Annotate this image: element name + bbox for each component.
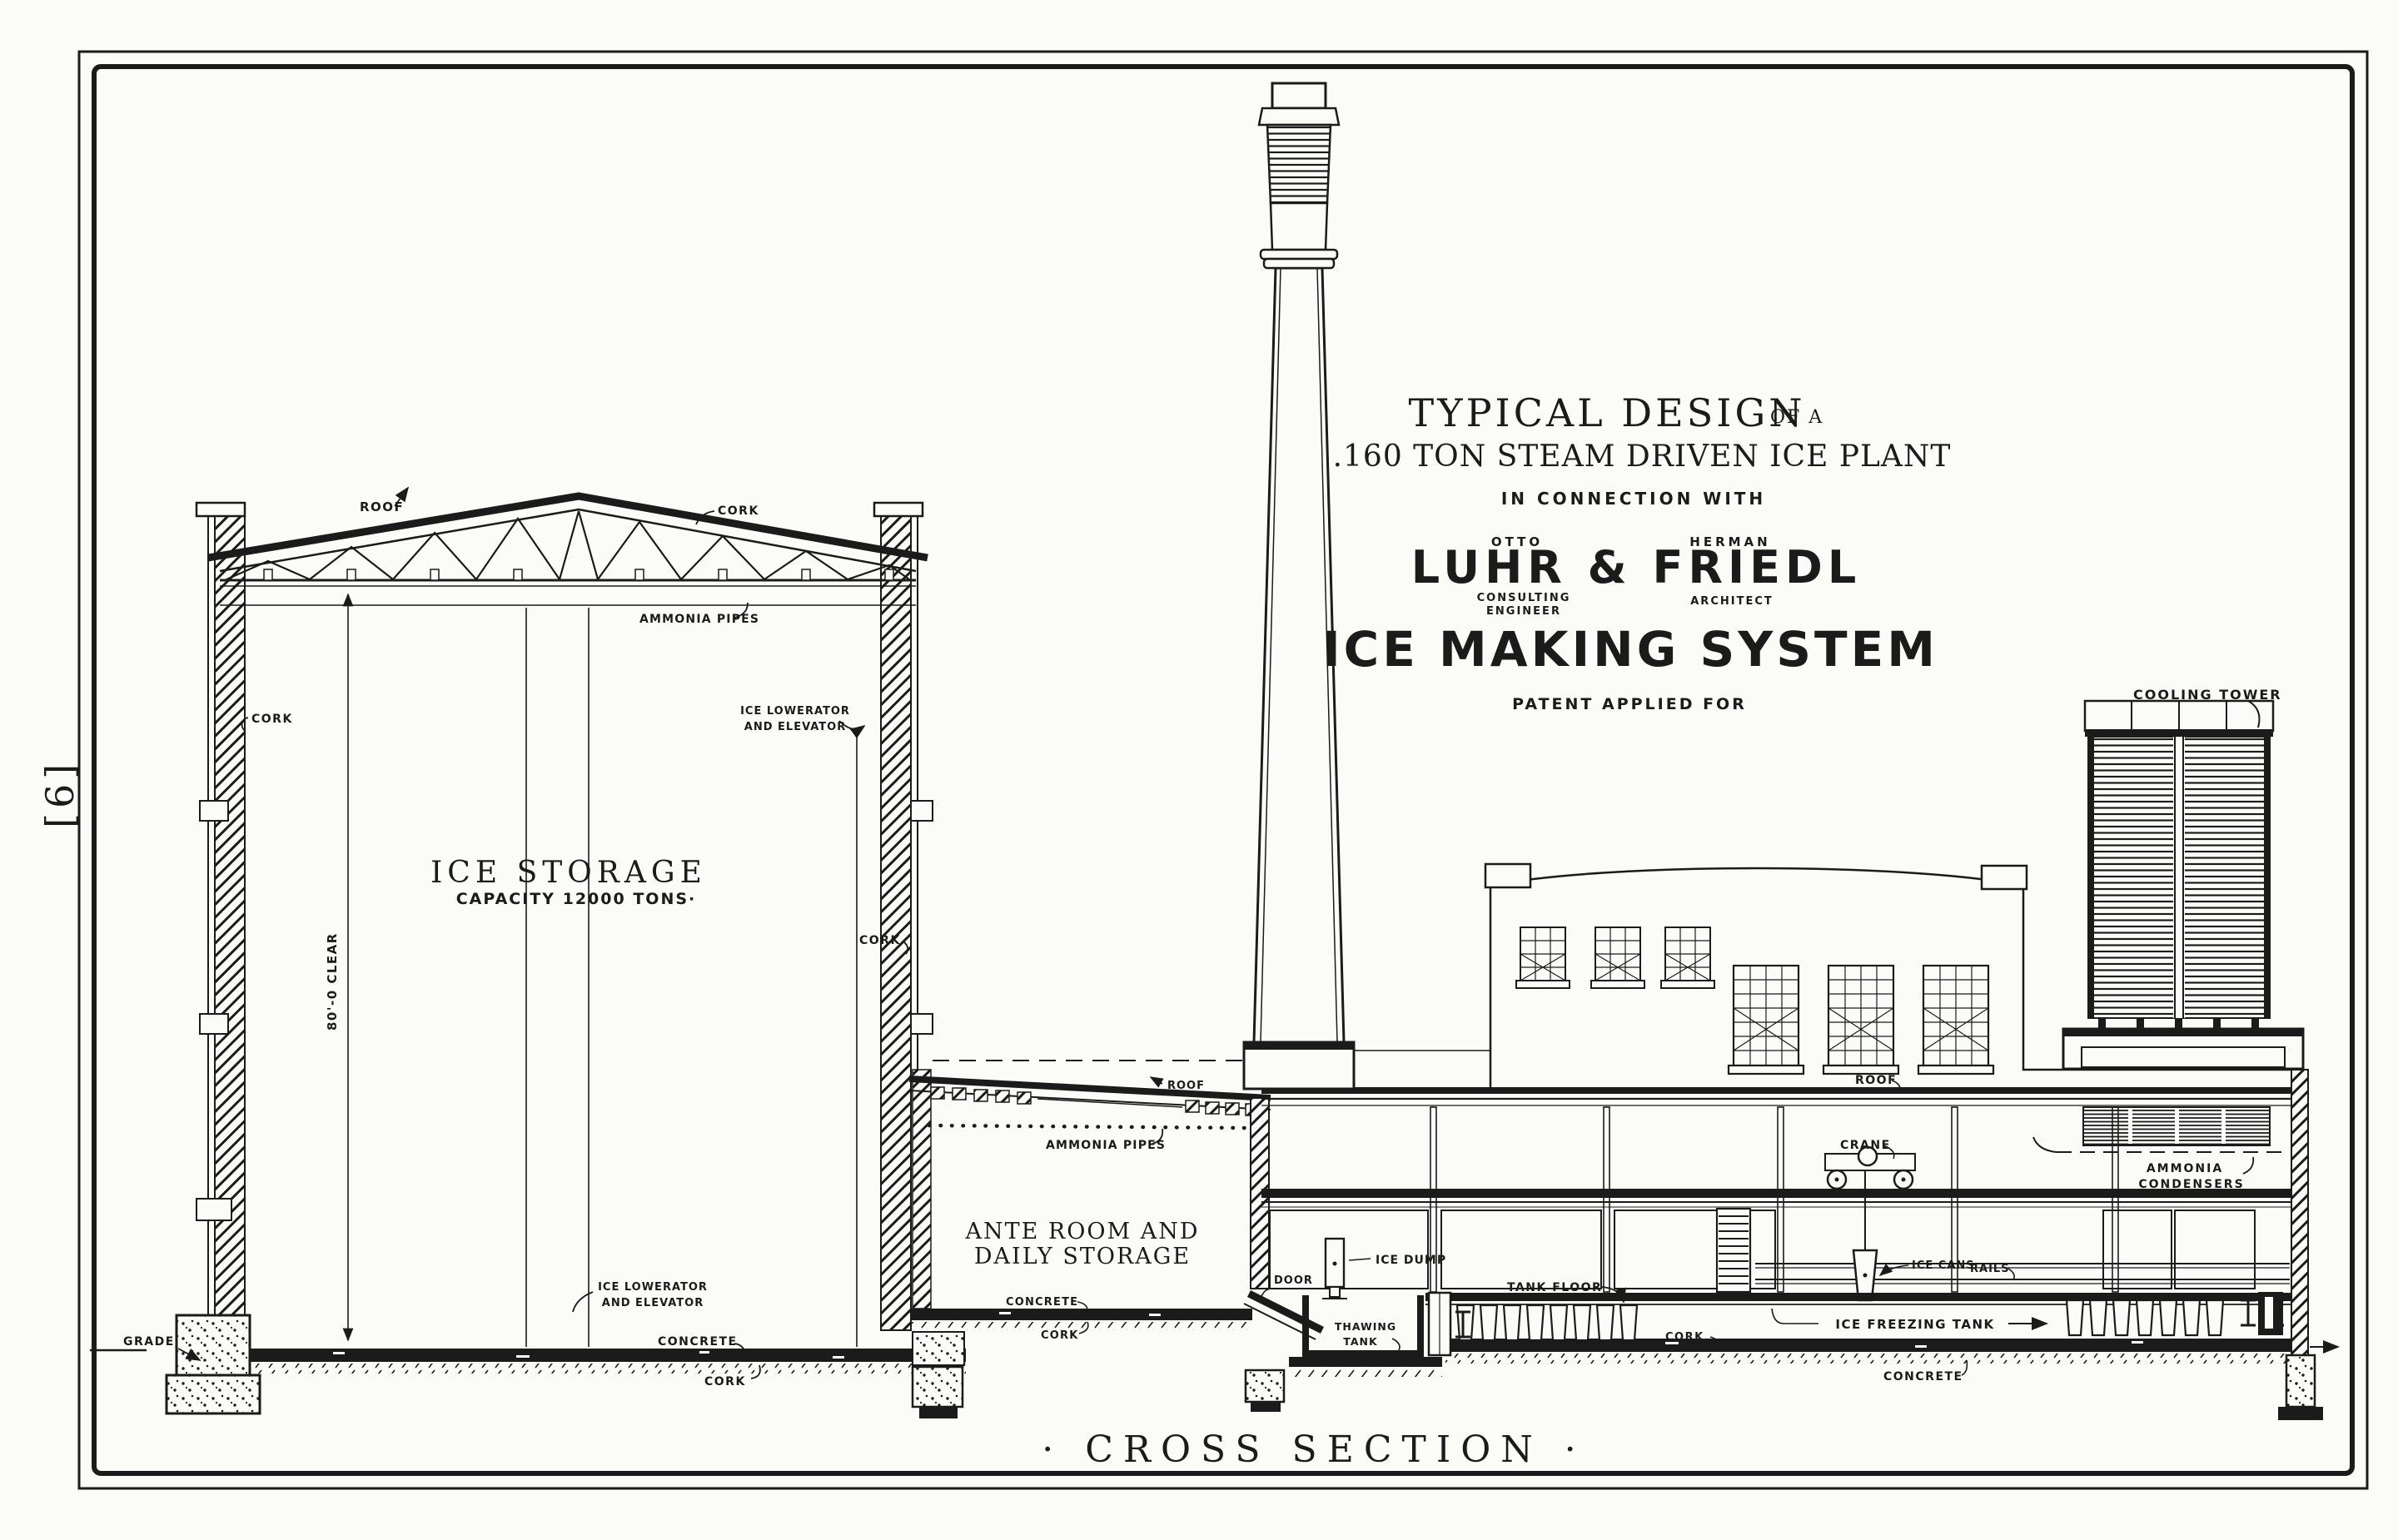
cork-right-wall-label: CORK — [859, 934, 901, 947]
rails-label: RAILS — [1970, 1263, 2010, 1275]
lowerator-bottom-label-2: AND ELEVATOR — [602, 1297, 704, 1309]
lowerator-bottom-label-1: ICE LOWERATOR — [598, 1281, 708, 1294]
role-consulting: CONSULTING — [1477, 592, 1571, 604]
concrete-label: CONCRETE — [658, 1335, 738, 1349]
ante-roof-label: ROOF — [1167, 1080, 1205, 1092]
cork-left-wall-label: CORK — [251, 713, 293, 726]
system-name: ICE MAKING SYSTEM — [1322, 621, 1938, 678]
role-architect: ARCHITECT — [1690, 595, 1774, 608]
thawing-tank-label-1: THAWING — [1335, 1320, 1396, 1333]
ante-cork-label: CORK — [1041, 1329, 1078, 1342]
tank-floor-label: TANK FLOOR — [1507, 1281, 1602, 1294]
title-line1-small: OF A — [1770, 407, 1823, 428]
title-connection: IN CONNECTION WITH — [1501, 489, 1766, 509]
drawing-title: · CROSS SECTION · — [1042, 1428, 1586, 1471]
cork-roof-label: CORK — [718, 504, 759, 518]
cooling-tower-label: COOLING TOWER — [2133, 687, 2282, 703]
door-label: DOOR — [1274, 1274, 1313, 1287]
ante-room-name-1: ANTE ROOM AND — [964, 1219, 1199, 1244]
ice-dump-label: ICE DUMP — [1376, 1254, 1446, 1267]
lowerator-top-label-2: AND ELEVATOR — [744, 721, 846, 733]
mh-concrete-label: CONCRETE — [1883, 1370, 1963, 1384]
blueprint-page: [6] — [0, 0, 2398, 1540]
ante-concrete-label: CONCRETE — [1006, 1296, 1078, 1309]
grade-label: GRADE — [123, 1335, 175, 1349]
room-name: ICE STORAGE — [430, 856, 707, 890]
wall-footing — [177, 1315, 250, 1375]
lowerator-top-label-1: ICE LOWERATOR — [740, 705, 850, 718]
condensers-label-1: AMMONIA — [2147, 1162, 2223, 1175]
role-engineer: ENGINEER — [1486, 605, 1561, 618]
clear-height-label: 80'-0 CLEAR — [325, 932, 340, 1031]
ice-cans-label: ICE CANS — [1912, 1259, 1975, 1272]
page-number: [6] — [37, 759, 82, 828]
mh-roof-label: ROOF — [1855, 1074, 1897, 1087]
crane-label: CRANE — [1840, 1139, 1891, 1152]
room-capacity: CAPACITY 12000 TONS· — [456, 890, 697, 908]
title-block: TYPICAL DESIGN OF A .160 TON STEAM DRIVE… — [1322, 390, 1951, 713]
cooling-tower — [2063, 701, 2303, 1069]
tank-cork-label: CORK — [1665, 1331, 1704, 1344]
title-line2: .160 TON STEAM DRIVEN ICE PLANT — [1333, 440, 1952, 474]
firm-name: LUHR & FRIEDL — [1411, 541, 1861, 594]
freezing-tank-label: ICE FREEZING TANK — [1835, 1317, 1994, 1332]
ante-ammonia-label: AMMONIA PIPES — [1046, 1139, 1166, 1152]
ladder — [1717, 1209, 1750, 1292]
large-windows — [1729, 966, 1993, 1074]
small-windows — [1516, 927, 1714, 988]
patent-note: PATENT APPLIED FOR — [1512, 695, 1747, 713]
cross-section-drawing: [6] — [0, 0, 2398, 1540]
condensers-label-2: CONDENSERS — [2138, 1178, 2244, 1191]
title-line1: TYPICAL DESIGN — [1409, 390, 1806, 435]
ante-room-name-2: DAILY STORAGE — [974, 1244, 1191, 1269]
cork-floor-label: CORK — [704, 1375, 746, 1388]
thawing-tank-label-2: TANK — [1343, 1335, 1378, 1348]
